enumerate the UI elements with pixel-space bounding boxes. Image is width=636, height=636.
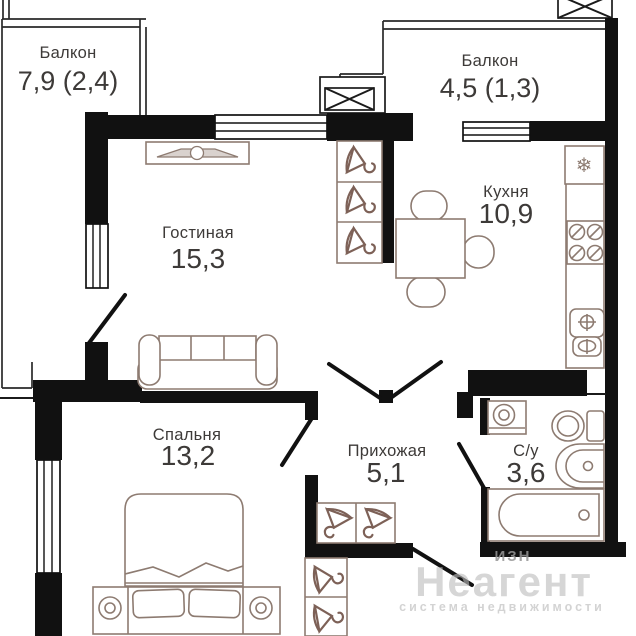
living-room-area: 15,3 (171, 243, 226, 274)
watermark: ИЗН Неагент система недвижимости (399, 548, 605, 614)
bed (93, 494, 280, 634)
floor-plan: ❄ (0, 0, 636, 636)
dining-table (396, 219, 465, 278)
living-opening-swing (329, 364, 380, 398)
fridge: ❄ (565, 146, 604, 184)
bathroom-door-swing (459, 444, 484, 488)
bathroom-area: 3,6 (507, 457, 546, 488)
kitchen-sink (570, 309, 604, 356)
pillow (189, 589, 241, 618)
window-kitchen-top (463, 122, 530, 141)
living-room-label: Гостиная (162, 224, 234, 242)
wardrobe-living (337, 141, 382, 263)
balcony-left-label: Балкон (39, 44, 96, 62)
kitchen-opening-swing (392, 362, 441, 397)
wardrobe-hallway-top (317, 503, 395, 543)
window-living-left (86, 224, 108, 288)
sofa (138, 335, 277, 389)
bathroom-sink (556, 444, 604, 488)
chair (411, 191, 447, 221)
bathtub (488, 489, 604, 541)
hallway-area: 5,1 (367, 457, 406, 488)
watermark-tagline: система недвижимости (399, 600, 605, 614)
chair (407, 277, 445, 307)
shaft-hatched-box-mid (320, 77, 385, 113)
kitchen-area: 10,9 (479, 198, 534, 229)
shaft-hatched-box-top-right (558, 0, 612, 18)
bedroom-area: 13,2 (161, 440, 216, 471)
watermark-brand: Неагент (415, 558, 593, 605)
wardrobe-hallway-bottom (305, 558, 347, 636)
balcony-right-area: 4,5 (1,3) (440, 73, 541, 103)
washing-machine (488, 401, 526, 434)
bedroom-door-swing (282, 418, 312, 465)
window-bedroom-left (37, 460, 60, 573)
toilet (552, 411, 604, 441)
balcony-right-label: Балкон (461, 52, 518, 70)
balcony-door-swing (89, 295, 125, 343)
pillow (133, 589, 185, 618)
stove (567, 221, 604, 264)
balcony-left-area: 7,9 (2,4) (18, 66, 119, 96)
snowflake-icon: ❄ (576, 155, 593, 177)
tv-icon (191, 147, 204, 160)
window-living-top (215, 115, 327, 139)
tv-stand (146, 142, 249, 164)
chair (463, 236, 494, 268)
